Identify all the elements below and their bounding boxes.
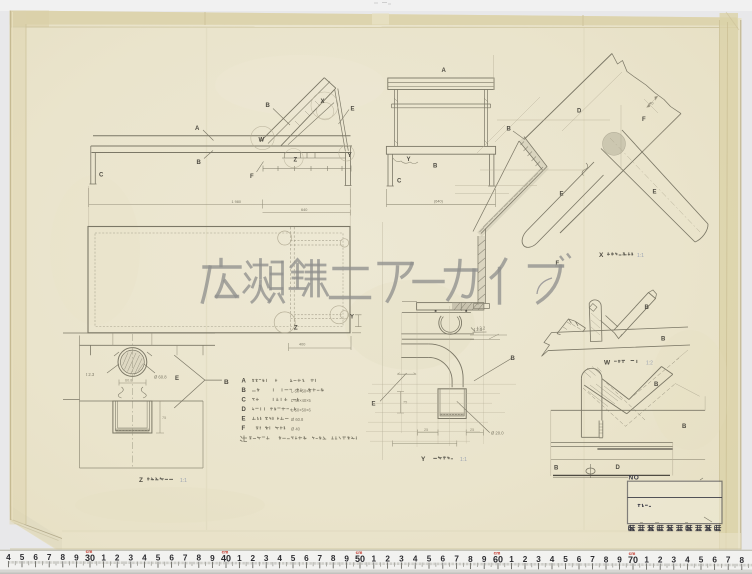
svg-text:Ø 60.8: Ø 60.8 <box>291 417 304 422</box>
svg-text:7: 7 <box>318 554 323 563</box>
svg-text:E: E <box>351 107 355 113</box>
svg-text:D: D <box>242 407 247 413</box>
svg-text:E: E <box>372 402 376 408</box>
svg-text:1:1: 1:1 <box>460 457 467 463</box>
svg-text:40: 40 <box>649 101 654 106</box>
svg-text:C: C <box>99 173 104 179</box>
svg-text:2: 2 <box>523 555 528 564</box>
svg-text:5: 5 <box>291 554 296 563</box>
svg-text:5: 5 <box>563 555 568 564</box>
svg-text:Ø 20.0: Ø 20.0 <box>491 431 504 436</box>
svg-text:t 2.3: t 2.3 <box>86 372 95 377</box>
svg-text:W: W <box>259 138 265 144</box>
svg-text:1: 1 <box>509 555 514 564</box>
svg-text:F: F <box>250 174 254 180</box>
svg-text:7: 7 <box>726 556 731 565</box>
svg-text:Y: Y <box>407 157 411 163</box>
svg-text:6: 6 <box>304 554 309 563</box>
svg-text:W: W <box>604 360 611 367</box>
svg-text:L-50×50×6: L-50×50×6 <box>291 407 312 412</box>
svg-text:4: 4 <box>685 556 690 565</box>
svg-text:9: 9 <box>482 555 487 564</box>
svg-text:cm: cm <box>222 550 229 555</box>
svg-text:7: 7 <box>183 554 188 563</box>
svg-text:8: 8 <box>740 556 745 565</box>
svg-text:Y: Y <box>348 153 352 159</box>
svg-text:50: 50 <box>355 554 365 564</box>
svg-text:9: 9 <box>210 554 215 563</box>
svg-text:B: B <box>224 379 229 386</box>
svg-text:C: C <box>397 179 402 185</box>
svg-text:B: B <box>507 127 512 133</box>
svg-text:B: B <box>511 356 516 362</box>
svg-text:Y: Y <box>350 315 354 321</box>
svg-text:5: 5 <box>699 556 704 565</box>
svg-text:25: 25 <box>424 428 428 432</box>
svg-text:1:1: 1:1 <box>637 253 644 259</box>
svg-text:400: 400 <box>299 343 305 347</box>
svg-text:B: B <box>661 337 666 343</box>
svg-text:NO: NO <box>629 475 640 482</box>
svg-text:60.8: 60.8 <box>125 379 132 383</box>
svg-text:25: 25 <box>470 428 474 432</box>
svg-text:75: 75 <box>162 416 166 420</box>
svg-text:L-50×50×6: L-50×50×6 <box>291 388 312 393</box>
svg-text:7: 7 <box>590 555 595 564</box>
svg-text:7: 7 <box>47 553 52 562</box>
svg-text:X: X <box>321 99 325 105</box>
svg-text:4: 4 <box>277 554 282 563</box>
svg-text:Z: Z <box>294 158 298 164</box>
svg-text:3: 3 <box>399 555 404 564</box>
svg-text:D: D <box>577 109 582 115</box>
svg-text:8: 8 <box>61 553 66 562</box>
svg-text:6: 6 <box>577 555 582 564</box>
svg-text:B: B <box>645 305 650 311</box>
svg-text:A: A <box>242 379 247 385</box>
svg-text:1:2: 1:2 <box>646 361 653 367</box>
svg-text:E: E <box>653 190 657 196</box>
svg-text:1 980: 1 980 <box>232 200 242 204</box>
svg-text:2: 2 <box>115 553 120 562</box>
svg-text:B: B <box>197 160 202 166</box>
svg-text:2: 2 <box>251 554 256 563</box>
svg-text:B: B <box>433 164 438 170</box>
svg-text:Ø 40: Ø 40 <box>291 426 301 431</box>
svg-text:6: 6 <box>33 553 38 562</box>
svg-text:8: 8 <box>331 554 336 563</box>
svg-text:6: 6 <box>169 554 174 563</box>
svg-text:6: 6 <box>441 555 446 564</box>
svg-text:4: 4 <box>550 555 555 564</box>
svg-text:cm: cm <box>356 550 363 555</box>
svg-text:F: F <box>642 117 646 123</box>
svg-text:C: C <box>242 398 247 404</box>
svg-text:8: 8 <box>604 555 609 564</box>
svg-text:t 2.2: t 2.2 <box>477 326 486 331</box>
svg-text:B: B <box>554 466 559 472</box>
svg-text:F: F <box>242 426 246 432</box>
svg-text:cm: cm <box>494 551 501 556</box>
svg-text:E: E <box>560 192 564 198</box>
svg-text:cm: cm <box>629 551 636 556</box>
svg-text:(640): (640) <box>434 200 444 204</box>
svg-text:70: 70 <box>628 555 638 565</box>
svg-text:9: 9 <box>344 554 349 563</box>
svg-text:A: A <box>442 68 447 74</box>
svg-text:Y: Y <box>421 456 426 463</box>
svg-text:5: 5 <box>156 554 161 563</box>
svg-text:3: 3 <box>536 555 541 564</box>
svg-text:75: 75 <box>403 401 407 405</box>
svg-text:Z: Z <box>294 326 298 332</box>
svg-text:30: 30 <box>85 553 95 563</box>
svg-text:4: 4 <box>6 553 11 562</box>
svg-text:4: 4 <box>142 554 147 563</box>
svg-text:A: A <box>195 126 200 132</box>
svg-text:1: 1 <box>101 553 106 562</box>
svg-text:1: 1 <box>372 554 377 563</box>
svg-text:1: 1 <box>644 555 649 564</box>
svg-text:X: X <box>599 252 604 259</box>
svg-text:2: 2 <box>658 556 663 565</box>
svg-text:40: 40 <box>221 553 231 563</box>
svg-text:9: 9 <box>74 553 79 562</box>
svg-text:L-40×40×5: L-40×40×5 <box>291 398 312 403</box>
svg-text:Ø 60.8: Ø 60.8 <box>154 375 167 380</box>
svg-text:B: B <box>682 424 687 430</box>
svg-text:B: B <box>654 382 659 388</box>
svg-text:3: 3 <box>264 554 269 563</box>
svg-text:640: 640 <box>301 208 307 212</box>
svg-text:3: 3 <box>672 556 677 565</box>
svg-text:D: D <box>616 465 621 471</box>
svg-text:1: 1 <box>237 554 242 563</box>
svg-text:6: 6 <box>712 556 717 565</box>
svg-text:5: 5 <box>427 555 432 564</box>
svg-text:9: 9 <box>617 555 622 564</box>
svg-text:4: 4 <box>413 555 418 564</box>
svg-text:8: 8 <box>197 554 202 563</box>
svg-text:8: 8 <box>468 555 473 564</box>
svg-text:1:1: 1:1 <box>180 478 187 484</box>
svg-text:2: 2 <box>385 554 390 563</box>
svg-text:cm: cm <box>86 549 93 554</box>
svg-text:60: 60 <box>493 555 503 565</box>
svg-text:Z: Z <box>139 477 143 484</box>
svg-text:3: 3 <box>129 554 134 563</box>
svg-text:E: E <box>242 417 246 423</box>
svg-text:B: B <box>242 388 247 394</box>
svg-text:B: B <box>266 103 271 109</box>
svg-text:7: 7 <box>454 555 459 564</box>
svg-text:5: 5 <box>20 553 25 562</box>
svg-text:E: E <box>175 376 179 382</box>
